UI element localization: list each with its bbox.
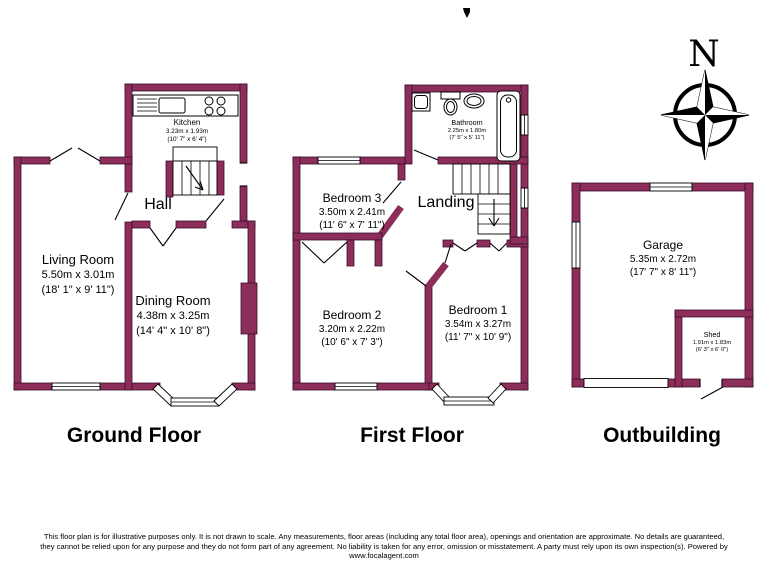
garage-door: [584, 379, 668, 388]
cursor-artifact: [463, 8, 470, 18]
first-floor-plan: [293, 85, 528, 405]
room-label-kitchen: Kitchen 3.23m x 1.93m (10' 7" x 6' 4"): [166, 118, 208, 144]
disclaimer-line-1: This floor plan is for illustrative purp…: [0, 532, 768, 542]
compass-rose: N: [661, 34, 749, 160]
bay-window-right: [488, 384, 506, 403]
room-label-bedroom-3: Bedroom 3 3.50m x 2.41m (11' 6" x 7' 11"…: [319, 191, 385, 232]
sink-icon: [159, 98, 185, 113]
room-label-hall: Hall: [144, 196, 172, 214]
toilet-icon: [441, 92, 460, 99]
room-label-shed: Shed 1.91m x 1.83m (6' 3" x 6' 0"): [693, 331, 731, 355]
kitchen-counter: [133, 95, 238, 116]
disclaimer: This floor plan is for illustrative purp…: [0, 532, 768, 561]
outbuilding-plan: [572, 183, 753, 399]
room-label-landing: Landing: [418, 194, 475, 212]
room-label-bedroom-2: Bedroom 2 3.20m x 2.22m (10' 6" x 7' 3"): [319, 308, 385, 349]
floor-title-outbuilding: Outbuilding: [603, 424, 721, 448]
room-label-dining-room: Dining Room 4.38m x 3.25m (14' 4" x 10' …: [135, 293, 210, 338]
floorplan-graphics: N: [0, 0, 768, 576]
floor-title-first: First Floor: [360, 424, 464, 448]
floor-plan-page: N Kitchen 3.23m x 1.93m (10' 7" x 6' 4")…: [0, 0, 768, 576]
room-label-garage: Garage 5.35m x 2.72m (17' 7" x 8' 11"): [630, 238, 696, 279]
disclaimer-line-3: www.focalagent.com: [0, 551, 768, 561]
ground-floor-plan: [14, 84, 257, 406]
ground-stairs: [173, 147, 217, 195]
north-label: N: [688, 34, 720, 75]
room-label-bedroom-1: Bedroom 1 3.54m x 3.27m (11' 7" x 10' 9"…: [445, 303, 511, 344]
bay-window-right: [214, 384, 237, 406]
shed-door: [700, 379, 723, 399]
disclaimer-line-2: they cannot be relied upon for any purpo…: [0, 542, 768, 552]
chimney-breast: [241, 283, 257, 334]
room-label-living-room: Living Room 5.50m x 3.01m (18' 1" x 9' 1…: [42, 252, 115, 297]
floor-title-ground: Ground Floor: [67, 424, 201, 448]
room-label-bathroom: Bathroom 2.25m x 1.80m (7' 5" x 5' 11"): [448, 119, 486, 143]
